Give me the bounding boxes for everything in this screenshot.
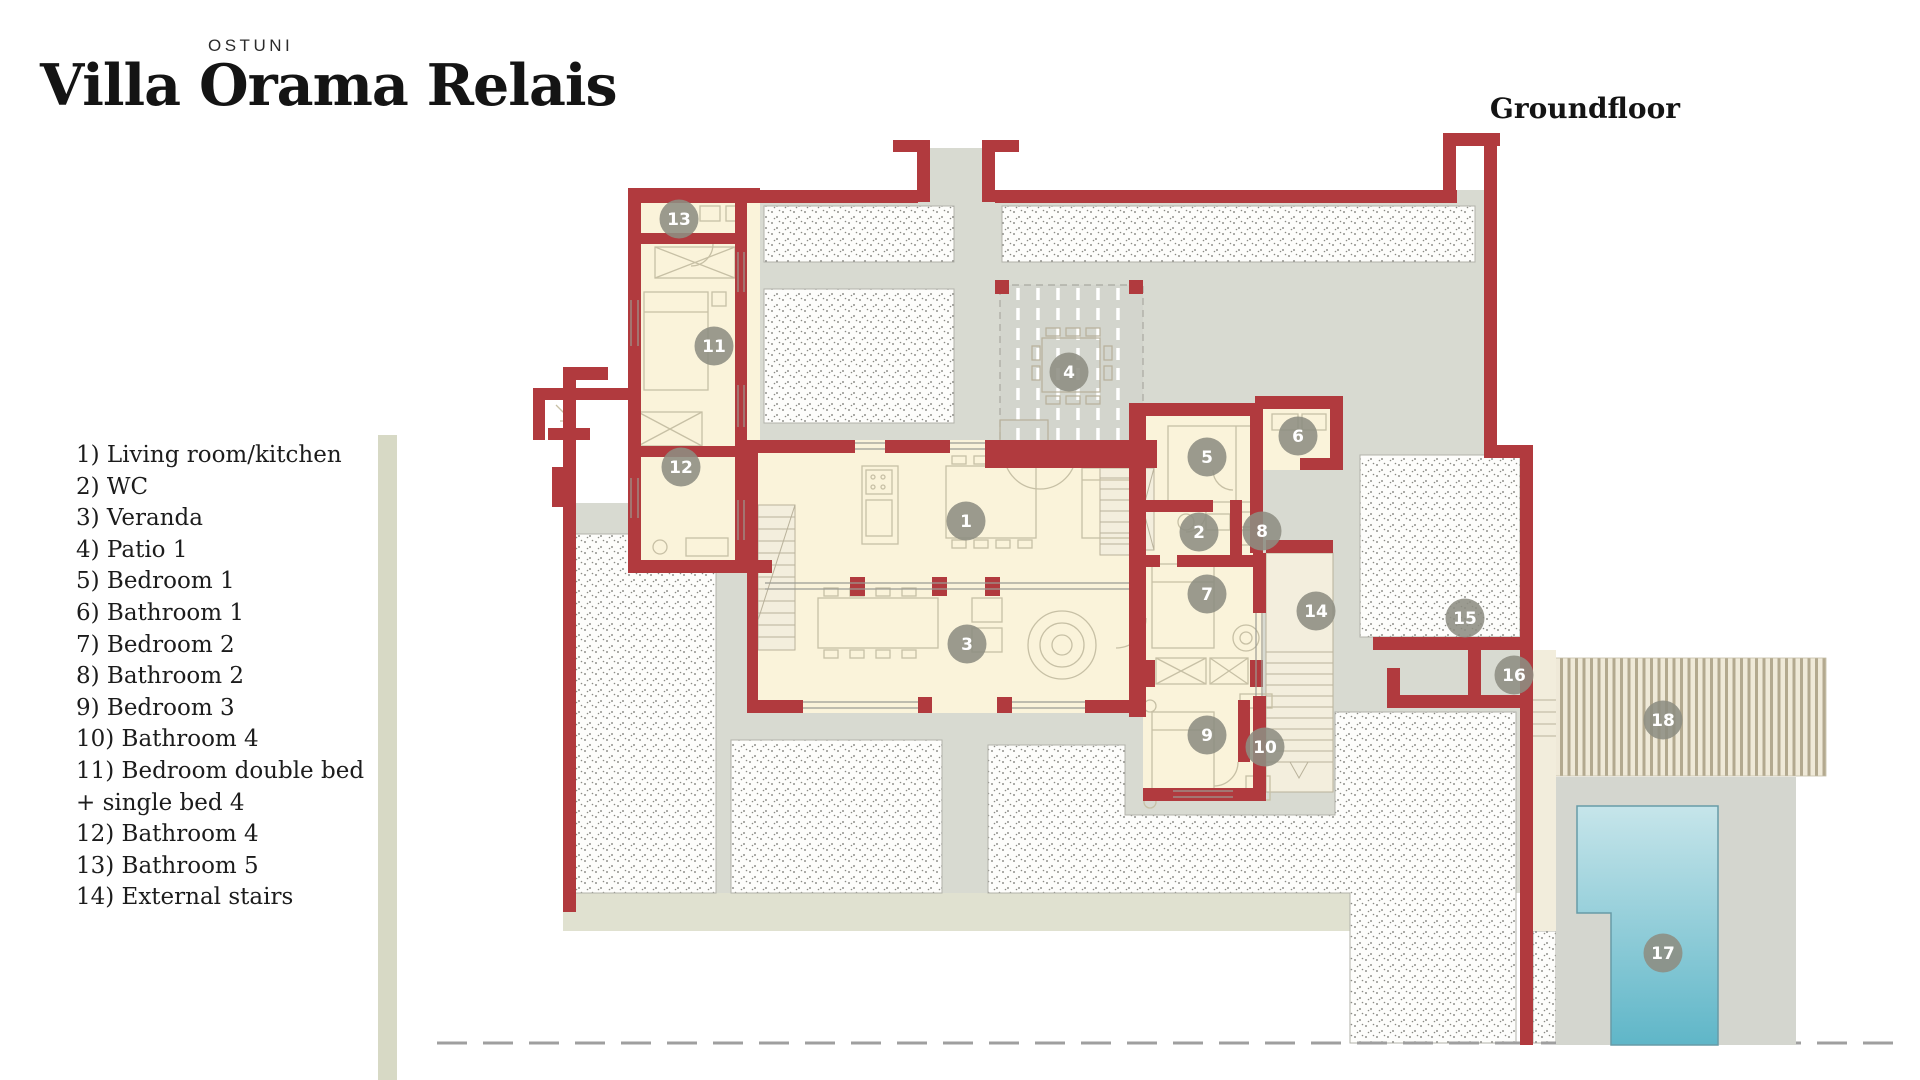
room-marker-17: 17: [1644, 934, 1683, 973]
svg-text:8: 8: [1256, 522, 1268, 542]
svg-text:14: 14: [1304, 602, 1328, 622]
pool-area: [1556, 777, 1796, 1045]
room-marker-12: 12: [662, 448, 701, 487]
room-marker-11: 11: [695, 327, 734, 366]
svg-text:18: 18: [1651, 711, 1675, 731]
page: OSTUNI Villa Orama Relais Groundfloor 1)…: [0, 0, 1920, 1080]
sage-divider-bar: [378, 435, 397, 1080]
room-marker-9: 9: [1188, 716, 1227, 755]
svg-text:4: 4: [1063, 363, 1075, 383]
svg-text:5: 5: [1201, 448, 1213, 468]
svg-text:6: 6: [1292, 427, 1304, 447]
svg-text:7: 7: [1201, 585, 1213, 605]
svg-text:11: 11: [702, 337, 726, 357]
svg-text:9: 9: [1201, 726, 1213, 746]
room-marker-18: 18: [1644, 701, 1683, 740]
svg-text:1: 1: [960, 512, 972, 532]
room-marker-1: 1: [947, 502, 986, 541]
sage-bottom-strip: [563, 893, 1353, 931]
room-marker-16: 16: [1495, 656, 1534, 695]
pergola-post: [995, 280, 1009, 294]
svg-text:13: 13: [667, 210, 691, 230]
room-marker-7: 7: [1188, 575, 1227, 614]
svg-text:12: 12: [669, 458, 693, 478]
svg-text:15: 15: [1453, 609, 1477, 629]
room-marker-5: 5: [1188, 438, 1227, 477]
slatted-roof-structure: [1553, 658, 1826, 776]
room-marker-3: 3: [948, 625, 987, 664]
svg-text:10: 10: [1253, 738, 1277, 758]
garden-area-15: [1360, 455, 1520, 637]
room-marker-10: 10: [1246, 728, 1285, 767]
svg-text:17: 17: [1651, 944, 1675, 964]
svg-text:3: 3: [961, 635, 973, 655]
room-marker-6: 6: [1279, 417, 1318, 456]
room-marker-15: 15: [1446, 599, 1485, 638]
room-marker-2: 2: [1180, 513, 1219, 552]
room-marker-14: 14: [1297, 592, 1336, 631]
floor-plan-svg: 123456789101112131415161718: [0, 0, 1920, 1080]
room-marker-8: 8: [1243, 512, 1282, 551]
room-marker-4: 4: [1050, 353, 1089, 392]
pergola-post: [1129, 280, 1143, 294]
svg-text:16: 16: [1502, 666, 1526, 686]
svg-text:2: 2: [1193, 523, 1205, 543]
entrance-path: [930, 148, 982, 194]
room-marker-13: 13: [660, 200, 699, 239]
